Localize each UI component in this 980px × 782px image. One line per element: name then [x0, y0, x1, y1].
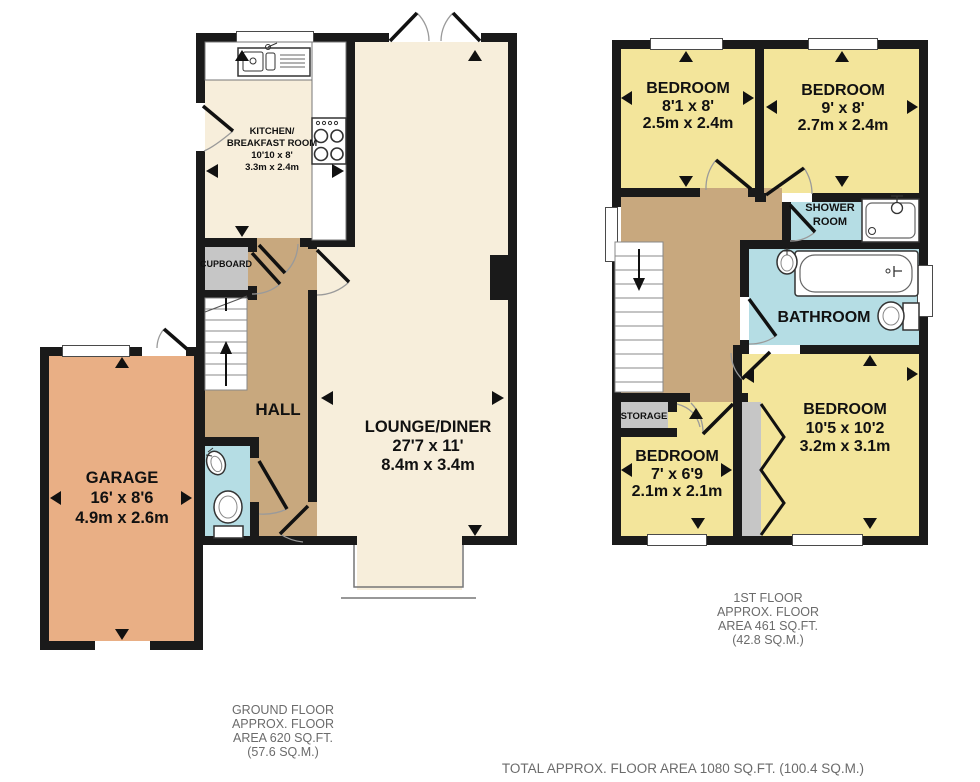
bathtub-icon [795, 251, 918, 296]
bathroom-label: BATHROOM [777, 309, 870, 327]
bedroom2-label: BEDROOM 9' x 8' 2.7m x 2.4m [798, 82, 889, 135]
shower-room-label: SHOWER ROOM [805, 201, 855, 229]
staircase [615, 242, 663, 392]
bifold-door-icon [761, 404, 784, 535]
shower-tray-icon [862, 196, 919, 242]
sink-icon [777, 248, 797, 274]
garage-label: GARAGE 16' x 8'6 4.9m x 2.6m [75, 468, 169, 528]
cupboard-label: CUPBOARD [200, 259, 252, 269]
toilet-icon [214, 491, 243, 538]
staircase [205, 296, 247, 390]
hall-label: HALL [255, 400, 300, 420]
floorplan: KITCHEN/ BREAKFAST ROOM 10'10 x 8' 3.3m … [0, 0, 980, 782]
ground-floor-caption: GROUND FLOOR APPROX. FLOOR AREA 620 SQ.F… [232, 703, 334, 759]
kitchen-label: KITCHEN/ BREAKFAST ROOM 10'10 x 8' 3.3m … [227, 126, 317, 174]
bedroom3-label: BEDROOM 7' x 6'9 2.1m x 2.1m [632, 448, 723, 501]
lounge-label: LOUNGE/DINER 27'7 x 11' 8.4m x 3.4m [365, 418, 492, 475]
bedroom1-label: BEDROOM 8'1 x 8' 2.5m x 2.4m [643, 80, 734, 133]
toilet-icon [878, 302, 919, 330]
bedroom4-label: BEDROOM 10'5 x 10'2 3.2m x 3.1m [800, 401, 891, 457]
bay-window [341, 545, 476, 598]
storage-label: STORAGE [621, 411, 668, 422]
sink-icon [203, 448, 228, 477]
first-floor-caption: 1ST FLOOR APPROX. FLOOR AREA 461 SQ.FT. … [717, 591, 819, 647]
total-area-caption: TOTAL APPROX. FLOOR AREA 1080 SQ.FT. (10… [502, 761, 864, 776]
kitchen-sink-icon [238, 43, 310, 76]
